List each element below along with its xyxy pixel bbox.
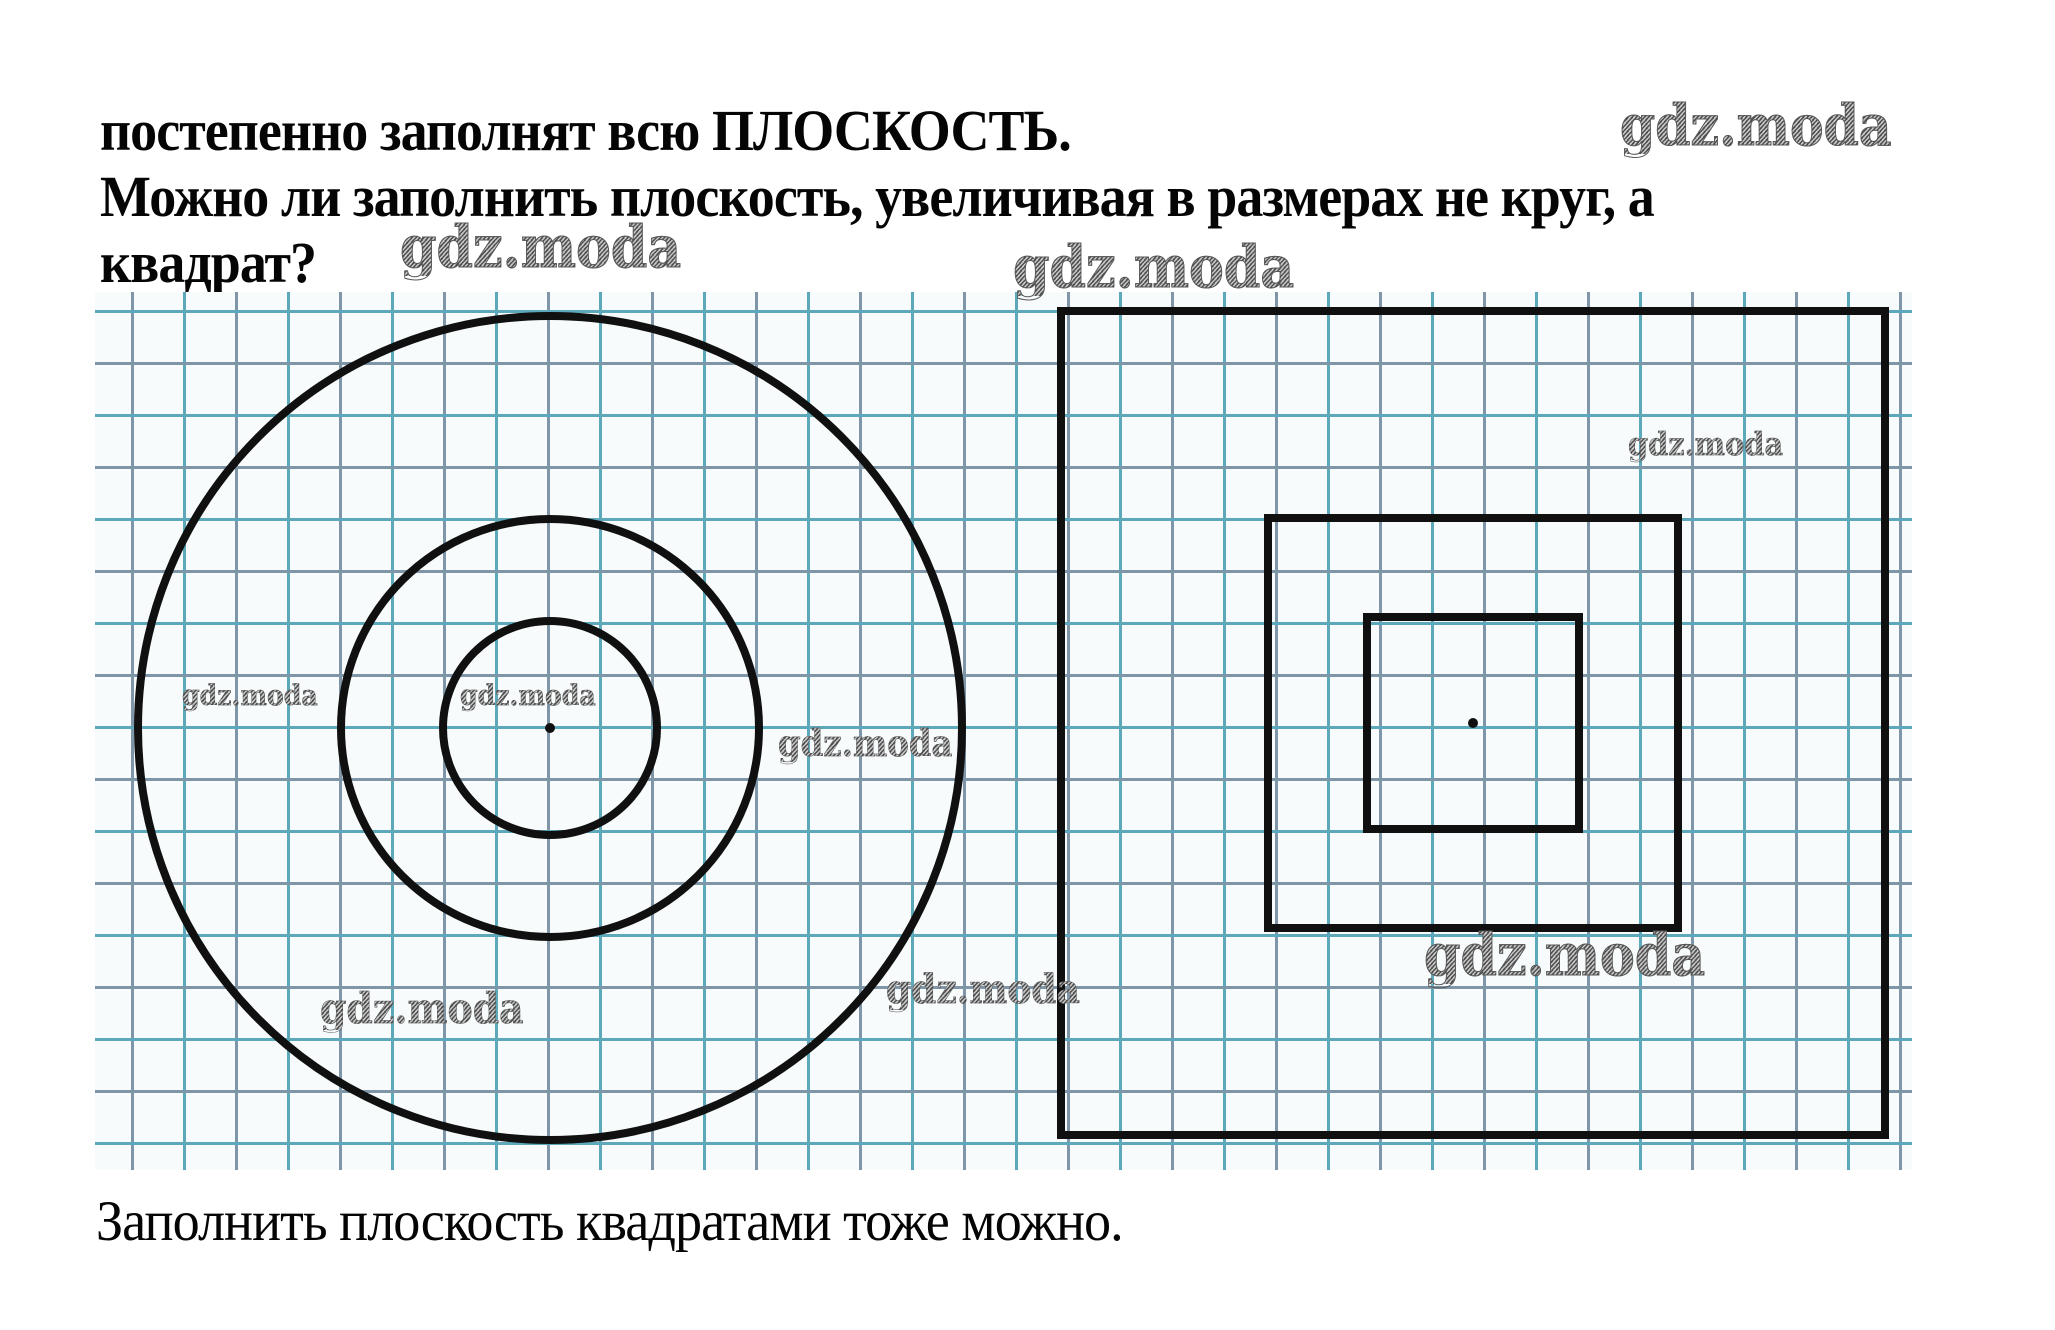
answer-text: Заполнить плоскость квадратами тоже можн… (96, 1193, 1123, 1250)
grid-lines (95, 292, 1912, 1170)
watermark: gdz.moda (400, 218, 681, 276)
square-center-dot (1468, 718, 1478, 728)
graph-paper-figure (95, 292, 1912, 1170)
watermark: gdz.moda (1620, 98, 1891, 154)
paragraph-top-line: постепенно заполнят всю ПЛОСКОСТЬ. (100, 102, 1071, 160)
circle-center-dot (545, 723, 555, 733)
watermark: gdz.moda (460, 682, 596, 710)
watermark: gdz.moda (320, 988, 524, 1030)
watermark: gdz.moda (1424, 926, 1705, 984)
watermark: gdz.moda (886, 970, 1080, 1010)
watermark: gdz.moda (182, 682, 318, 710)
question-line-1: Можно ли заполнить плоскость, увеличивая… (100, 168, 1654, 226)
question-line-2: квадрат? (100, 234, 316, 292)
watermark: gdz.moda (1628, 428, 1783, 460)
watermark: gdz.moda (1013, 238, 1294, 296)
watermark: gdz.moda (778, 726, 953, 762)
scanned-textbook-page: постепенно заполнят всю ПЛОСКОСТЬ. Можно… (0, 0, 2055, 1330)
